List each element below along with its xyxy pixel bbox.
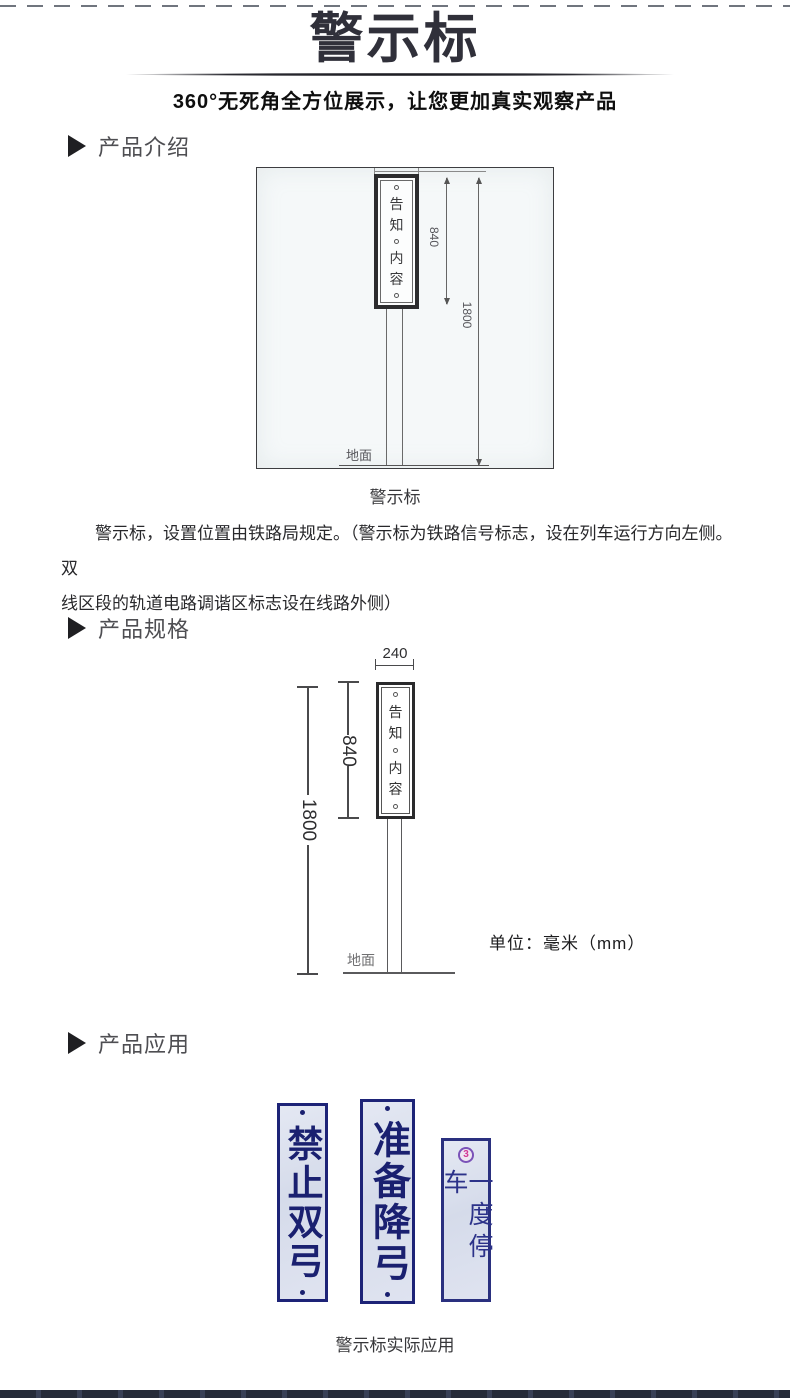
sign-text: 一度停车 (441, 1169, 491, 1295)
sign-pole-drawing (386, 309, 403, 465)
plate-char: 知 (389, 726, 403, 740)
paragraph-line: 警示标，设置位置由铁路局规定。（警示标为铁路信号标志，设在列车运行方向左侧。双 (61, 516, 737, 586)
page-title: 警示标 (0, 8, 790, 70)
arrow-down-icon (444, 298, 450, 305)
arrow-up-icon (444, 177, 450, 184)
sign-pole-drawing (387, 819, 402, 973)
sign-text: 禁止双弓 (285, 1125, 321, 1281)
dim-tick (413, 659, 414, 670)
dim-line-840 (446, 178, 447, 304)
triangle-icon (68, 617, 86, 639)
section-label: 产品规格 (98, 612, 190, 644)
product-page: 警示标 360°无死角全方位展示，让您更加真实观察产品 产品介绍 告 知 内 容 (0, 0, 790, 1398)
plate-char: 告 (389, 705, 403, 719)
dim-label-1800: 1800 (460, 285, 474, 345)
arrow-up-icon (476, 177, 482, 184)
sign-text: 准备降弓 (369, 1120, 407, 1284)
bolt-hole (394, 185, 399, 190)
dim-label-240: 240 (365, 645, 425, 662)
plate-char: 容 (390, 272, 404, 286)
dim-tick (375, 659, 376, 670)
dim-tick (338, 817, 359, 819)
sign-photo-zhunbei-jianggong: 准备降弓 (360, 1099, 415, 1304)
bolt-hole (300, 1110, 305, 1115)
title-divider (58, 73, 742, 76)
section-header-application: 产品应用 (68, 1029, 190, 1057)
dim-label-840: 840 (427, 207, 441, 267)
plate-char: 容 (389, 782, 403, 796)
dim-line-1800 (307, 845, 309, 975)
dim-tick (297, 973, 318, 975)
dim-line-1800 (478, 178, 479, 465)
ground-line (339, 465, 489, 466)
unit-label: 单位：毫米（mm） (489, 929, 645, 954)
circled-3-badge: 3 (458, 1147, 474, 1163)
bolt-hole (300, 1290, 305, 1295)
bolt-hole (394, 239, 399, 244)
bolt-hole (393, 748, 398, 753)
section-label: 产品应用 (98, 1027, 190, 1059)
triangle-icon (68, 135, 86, 157)
ground-label: 地面 (347, 950, 375, 970)
subtitle: 360°无死角全方位展示，让您更加真实观察产品 (0, 85, 790, 114)
dim-line-1800 (307, 687, 309, 795)
ground-line (343, 972, 455, 974)
bolt-hole (393, 692, 398, 697)
plate-char: 内 (389, 761, 403, 775)
intro-paragraph: 警示标，设置位置由铁路局规定。（警示标为铁路信号标志，设在列车运行方向左侧。双 … (61, 516, 737, 621)
dim-label-840: 840 (337, 716, 359, 786)
dim-tick (338, 681, 359, 683)
bolt-hole (394, 293, 399, 298)
bolt-hole (385, 1106, 390, 1111)
sign-plate-drawing: 告 知 内 容 (376, 682, 415, 819)
plate-char: 告 (390, 197, 404, 211)
drawing-caption: 警示标 (0, 483, 790, 508)
bolt-hole (393, 804, 398, 809)
top-edge-line (0, 5, 790, 7)
ground-label: 地面 (346, 445, 372, 464)
application-caption: 警示标实际应用 (0, 1331, 790, 1356)
intro-drawing: 告 知 内 容 840 1800 地面 (256, 167, 554, 469)
sign-photo-yidu-tingche: 3 一度停车 (441, 1138, 491, 1302)
dim-tick (297, 686, 318, 688)
plate-char: 内 (390, 251, 404, 265)
sign-plate-drawing: 告 知 内 容 (374, 174, 419, 309)
section-label: 产品介绍 (98, 130, 190, 162)
triangle-icon (68, 1032, 86, 1054)
bottom-edge-bar (0, 1390, 790, 1398)
dim-label-1800: 1800 (297, 785, 319, 855)
section-header-intro: 产品介绍 (68, 132, 190, 160)
sign-photo-jinzhi-shuanggong: 禁止双弓 (277, 1103, 328, 1302)
dim-line-240 (376, 665, 414, 666)
plate-char: 知 (390, 218, 404, 232)
sign-plate-inner: 告 知 内 容 (381, 687, 410, 814)
sign-plate-inner: 告 知 内 容 (380, 180, 413, 303)
section-header-spec: 产品规格 (68, 614, 190, 642)
extension-line (374, 171, 486, 172)
bolt-hole (385, 1292, 390, 1297)
